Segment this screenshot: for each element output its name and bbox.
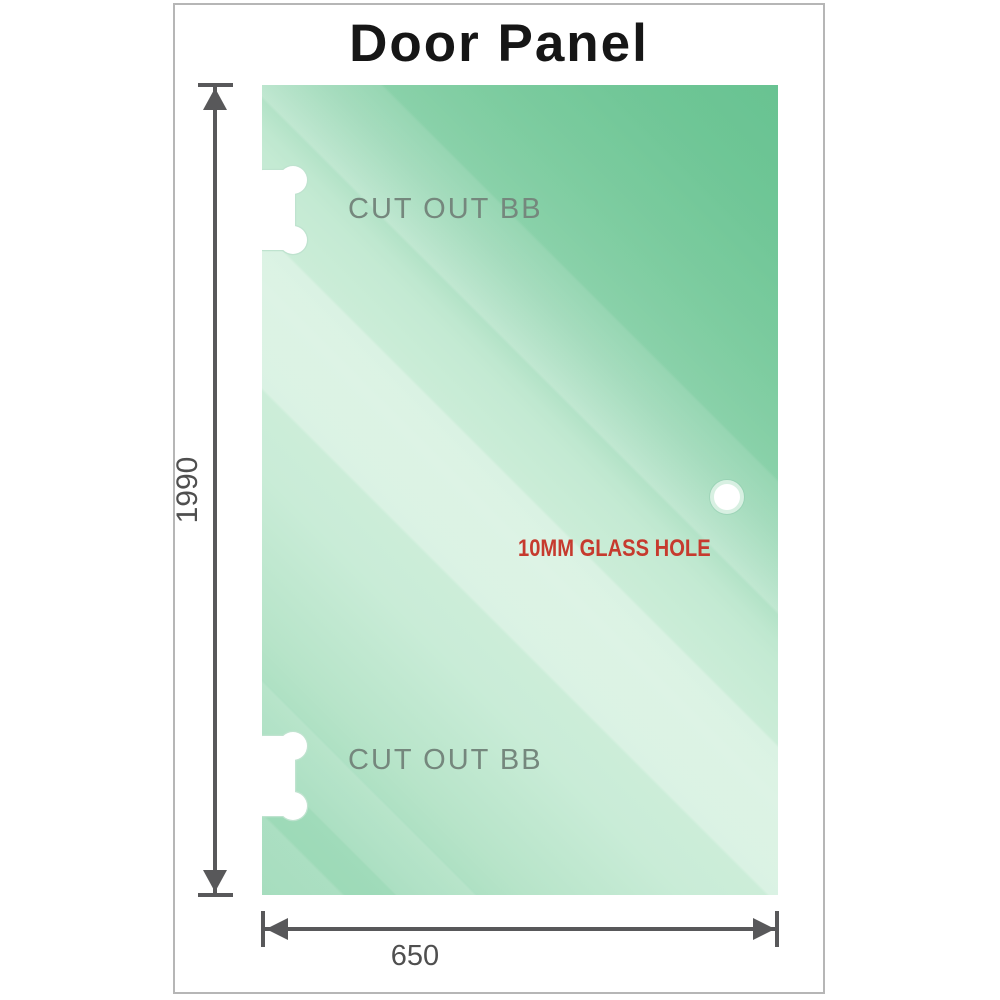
hinge-cutout-top-icon [262, 163, 312, 257]
cutout-label-top: CUT OUT BB [348, 193, 543, 226]
dimension-line-horizontal [263, 927, 777, 931]
dimension-cap-bottom [198, 893, 233, 897]
arrow-left-icon [266, 918, 288, 940]
glass-hole-label: 10MM GLASS HOLE [518, 535, 711, 563]
glass-hole [710, 480, 744, 514]
cutout-label-bottom: CUT OUT BB [348, 744, 543, 777]
arrow-right-icon [753, 918, 775, 940]
dimension-line-vertical [213, 87, 217, 893]
arrow-down-icon [203, 870, 227, 892]
dimension-tick-right [775, 911, 779, 947]
diagram-canvas: Door Panel CUT OUT BB CUT OUT BB 10MM GL [0, 0, 1000, 1000]
diagram-title: Door Panel [173, 14, 825, 74]
hinge-cutout-bottom-icon [262, 729, 312, 823]
height-dimension-value: 1990 [171, 430, 205, 550]
arrow-up-icon [203, 88, 227, 110]
width-dimension-value: 650 [375, 940, 455, 973]
